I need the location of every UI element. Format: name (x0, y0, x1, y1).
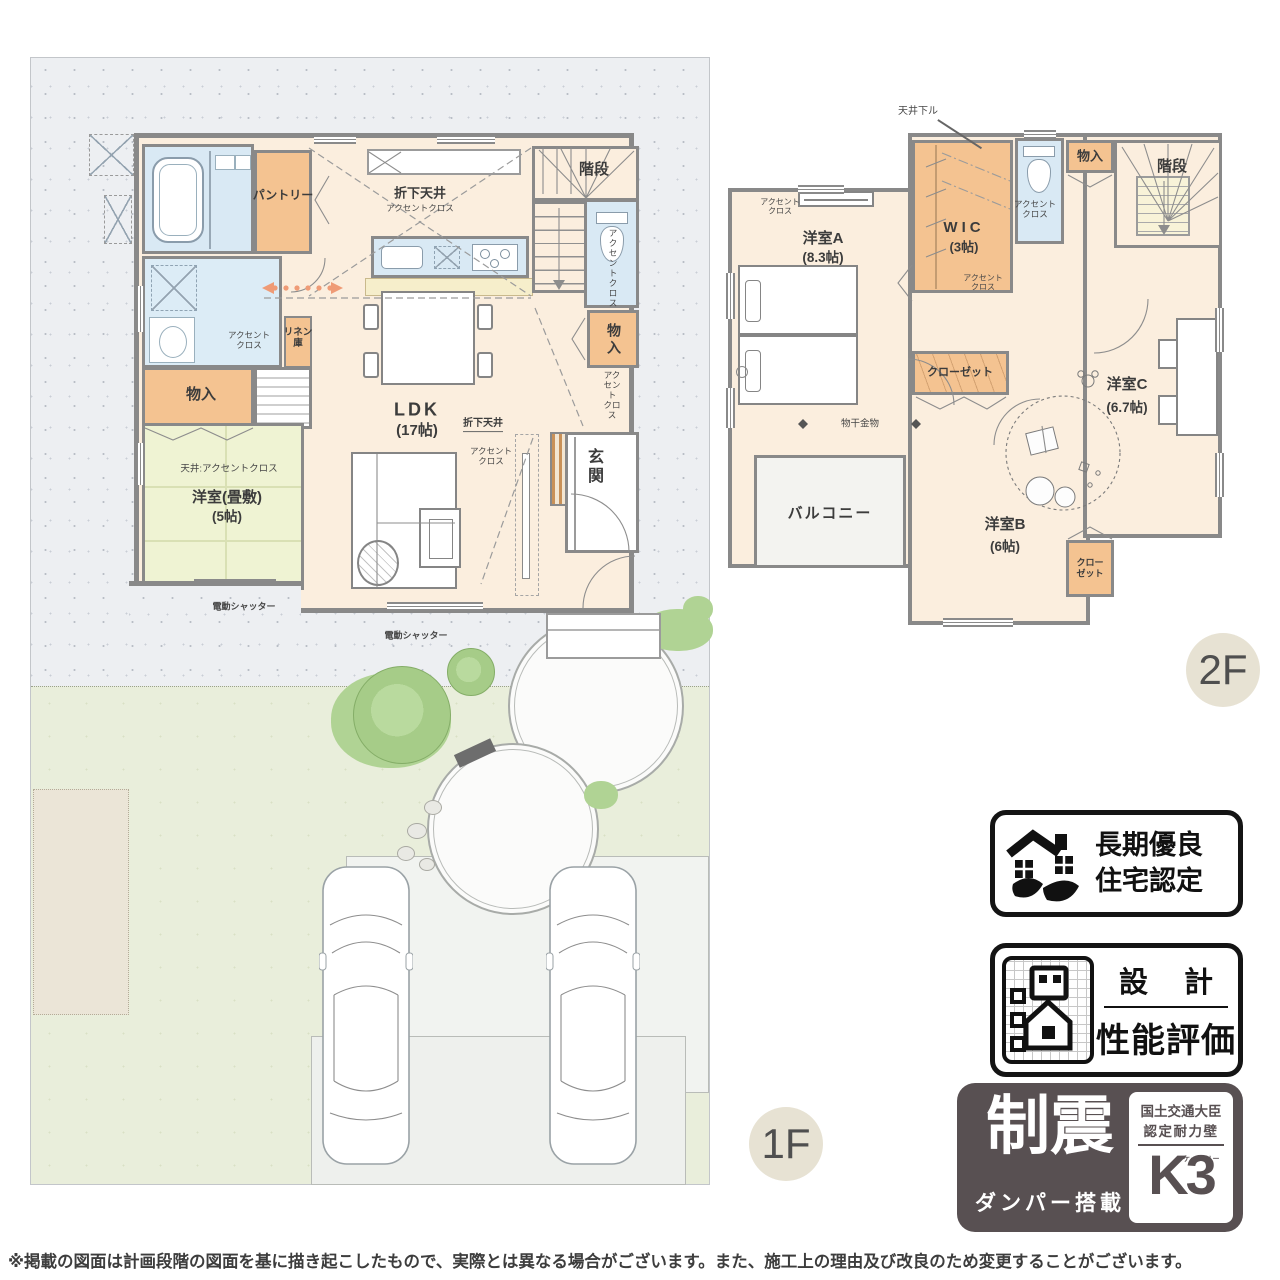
label-closet: クロー ゼット (1076, 557, 1103, 578)
washroom (142, 256, 282, 368)
room-label-wic-size: (3帖) (950, 239, 979, 254)
window (387, 602, 483, 611)
stepping-stone-icon (407, 823, 427, 839)
label-accent-cross: アクセント クロス (963, 274, 1003, 293)
bathtub-icon (152, 157, 204, 243)
kitchen-dashed-box (434, 246, 460, 269)
chair-icon (363, 352, 379, 378)
tv-board-icon (515, 434, 539, 596)
window (943, 618, 1013, 627)
badge-design-divider (1104, 1006, 1228, 1008)
badge-seismic-main: 制震 (971, 1093, 1129, 1160)
badge-longterm-line2: 住宅認定 (1095, 864, 1203, 899)
bathtub-inner (159, 164, 197, 236)
floor-badge-2f: 2F (1186, 633, 1260, 707)
design-house-icon (1002, 956, 1094, 1064)
burner (480, 249, 490, 259)
kitchen-counter (371, 236, 529, 278)
floor-badge-1f: 1F (749, 1107, 823, 1181)
room-label-ldk-size: (17帖) (396, 422, 438, 440)
window (314, 135, 356, 144)
car-icon (546, 863, 640, 1168)
room-label-storage: 物入 (607, 322, 622, 355)
room-label-roomB: 洋室B (985, 516, 1026, 534)
wic (912, 140, 1013, 293)
burner (500, 249, 510, 259)
floorplan-sheet: 電動シャッター 電動シャッター (0, 0, 1280, 1280)
pillow-icon (745, 280, 761, 322)
room-label-pantry: パントリー (253, 188, 314, 202)
label-orishita-tenjo: 折下天井 (394, 185, 446, 200)
burner (490, 259, 499, 268)
tree-icon (447, 648, 495, 696)
floor-badge-2f-text: 2F (1198, 646, 1247, 694)
stepping-stone-icon (397, 846, 415, 861)
shutter-label: 電動シャッター (384, 631, 447, 642)
badge-seismic-k3-small: ケースリー (1183, 1154, 1220, 1164)
window (1215, 453, 1224, 497)
badge-longterm-housing: 長期優良 住宅認定 (990, 810, 1243, 917)
site-plan: 電動シャッター 電動シャッター (30, 57, 710, 1185)
stepping-stone-icon (419, 858, 435, 871)
vanity-icon (149, 317, 195, 363)
stepping-stone-icon (424, 800, 442, 815)
room-label-ldk: LDK (394, 399, 440, 420)
car-icon (319, 863, 413, 1168)
bathroom (142, 144, 254, 254)
porch-step-line (548, 629, 659, 631)
desk-icon (1176, 318, 1218, 436)
vanity-bowl (159, 326, 187, 358)
label-accent-cross: アクセント クロス (228, 330, 270, 350)
room-label-storage: 物入 (186, 386, 216, 404)
floorplan-2f: アクセント クロス 洋室A (8.3帖) WIC (3帖) アクセント クロス … (728, 133, 1222, 625)
room-label-genkan: 玄関 (581, 449, 613, 487)
label-tenjo-sagari: 天井下ル (898, 106, 938, 118)
equipment-pad-icon (89, 134, 134, 176)
dining-table-icon (381, 291, 475, 385)
label-ceiling-accent: 天井:アクセントクロス (180, 463, 277, 474)
room-label-roomA-size: (8.3帖) (802, 250, 843, 266)
stairwell (1136, 176, 1190, 236)
laundry-space-icon (151, 265, 197, 311)
window (136, 443, 145, 485)
window (798, 185, 844, 194)
badge-seismic-right2: 認定耐力壁 (1129, 1120, 1233, 1140)
shrub-icon (683, 596, 713, 622)
step-storage (254, 367, 312, 429)
badge-seismic-panel: 国土交通大臣 認定耐力壁 ケースリー K3 (1129, 1092, 1233, 1223)
entrance-porch (546, 613, 661, 659)
room-label-tatami-size: (5帖) (212, 509, 242, 525)
chair-icon (1158, 339, 1178, 369)
room-label-balcony: バルコニー (788, 505, 873, 523)
label-closet: クローゼット (927, 367, 993, 380)
tv-icon (522, 453, 530, 579)
room-label-tatami: 洋室(畳敷) (192, 489, 262, 507)
window (726, 388, 735, 428)
washer-icon (215, 155, 235, 170)
window (726, 273, 735, 319)
toilet-tank-icon (1023, 146, 1055, 157)
bed-icon (738, 335, 858, 405)
chair-icon (477, 352, 493, 378)
chair-icon (477, 304, 493, 330)
window (1215, 308, 1224, 352)
label-orishita-tenjo: 折下天井 (463, 418, 503, 432)
equipment-pad-icon (104, 195, 132, 244)
label-accent-cross: アクセント クロス (605, 228, 621, 308)
bath-divider (209, 151, 211, 249)
intercom-icon (736, 366, 748, 378)
kitchen-sink-icon (381, 246, 423, 269)
room-label-storage: 物入 (1077, 148, 1103, 163)
badge-design-top: 設 計 (1094, 959, 1252, 1001)
shelf-line (804, 199, 868, 201)
badge-design-evaluation: 設 計 性能評価 (990, 943, 1243, 1077)
window (1024, 130, 1056, 139)
room-label-roomB-size: (6帖) (990, 539, 1020, 555)
floorplan-1f: パントリー 折下天井 アクセントクロス 階段 アクセント クロス 物入 アクセン… (134, 133, 634, 613)
toilet-tank-icon (596, 212, 628, 224)
room-label-stairs: 階段 (1157, 158, 1187, 176)
room-label-roomA: 洋室A (803, 230, 844, 248)
chair-icon (363, 304, 379, 330)
living-table-inner (429, 519, 453, 559)
label-accent-cross: アクセントクロス (386, 203, 454, 213)
badge-design-bottom: 性能評価 (1094, 1013, 1238, 1062)
room-label-stairs: 階段 (579, 161, 609, 179)
house-leaf-icon (1003, 822, 1085, 906)
room-label-linen: リネン 庫 (284, 327, 313, 349)
stairs-landing-1f (532, 201, 587, 293)
genkan-step-line (574, 437, 576, 550)
label-accent-cross: アクセント クロス (760, 198, 800, 217)
label-accent-cross: アクセント クロス (604, 370, 621, 420)
living-table-icon (419, 508, 461, 568)
chair-icon (1158, 395, 1178, 425)
room-label-wic: WIC (943, 219, 984, 237)
badge-seismic-sub: ダンパー搭載 (961, 1187, 1139, 1217)
label-accent-cross: アクセント クロス (470, 446, 512, 466)
site-plot-area (33, 789, 129, 1015)
disclaimer-text: ※掲載の図面は計画段階の図面を基に描き起こしたもので、実際とは異なる場合がござい… (8, 1248, 1276, 1272)
badge-longterm-line1: 長期優良 (1095, 828, 1203, 863)
pouf-icon (357, 540, 399, 586)
floor-badge-1f-text: 1F (761, 1120, 810, 1168)
washer-icon (235, 155, 251, 170)
stove-icon (472, 244, 518, 271)
shutter-label: 電動シャッター (212, 602, 275, 613)
window (437, 135, 495, 144)
label-accent-cross: アクセント クロス (1014, 199, 1056, 219)
label-monohoshi: 物干金物 (841, 418, 879, 429)
badge-seismic-damper: 制震 ダンパー搭載 国土交通大臣 認定耐力壁 ケースリー K3 (957, 1083, 1243, 1232)
badge-seismic-right1: 国土交通大臣 (1129, 1100, 1233, 1120)
bed-icon (738, 265, 858, 335)
tree-icon (353, 666, 451, 764)
room-label-roomC: 洋室C (1107, 376, 1148, 394)
shrub-icon (584, 781, 618, 809)
kitchen-back-counter (367, 149, 521, 175)
window (136, 286, 145, 332)
room-label-roomC-size: (6.7帖) (1106, 400, 1147, 416)
